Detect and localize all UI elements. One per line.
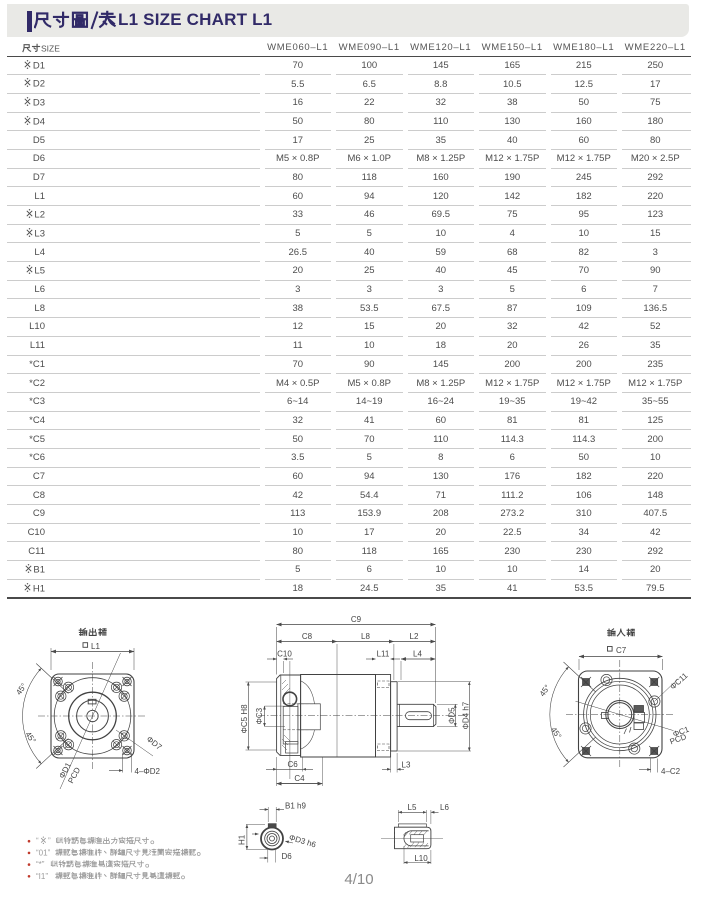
svg-text:C8: C8 <box>302 632 313 641</box>
svg-text:L10: L10 <box>414 854 428 863</box>
svg-text:H1: H1 <box>238 834 247 845</box>
svg-text:L11: L11 <box>377 650 390 659</box>
svg-text:45°: 45° <box>14 682 28 697</box>
svg-text:C7: C7 <box>616 646 627 655</box>
svg-text:L2: L2 <box>410 632 419 641</box>
svg-text:C10: C10 <box>277 650 292 659</box>
svg-text:D6: D6 <box>282 852 293 861</box>
svg-text:L3: L3 <box>402 761 411 770</box>
svg-text:ΦC5 H8: ΦC5 H8 <box>240 704 249 734</box>
svg-text:L1: L1 <box>91 642 100 651</box>
svg-text:L6: L6 <box>440 803 449 812</box>
svg-text:C4: C4 <box>294 774 305 783</box>
svg-text:4–ΦD2: 4–ΦD2 <box>135 767 161 776</box>
svg-text:ΦC11: ΦC11 <box>668 671 690 692</box>
svg-text:ΦD7: ΦD7 <box>145 734 164 752</box>
svg-text:PCD: PCD <box>669 732 688 746</box>
svg-text:C6: C6 <box>287 760 298 769</box>
svg-text:C9: C9 <box>351 615 362 624</box>
svg-text:ΦD5: ΦD5 <box>448 707 457 724</box>
svg-text:ΦC3: ΦC3 <box>255 707 264 724</box>
svg-text:45°: 45° <box>23 730 37 745</box>
svg-text:45°: 45° <box>538 683 552 698</box>
svg-text:ΦD3 h6: ΦD3 h6 <box>288 833 318 850</box>
svg-text:L5: L5 <box>408 803 417 812</box>
svg-text:4–C2: 4–C2 <box>661 767 681 776</box>
svg-text:L4: L4 <box>413 650 422 659</box>
svg-text:ΦD4 h7: ΦD4 h7 <box>461 701 470 729</box>
svg-text:L8: L8 <box>361 632 370 641</box>
svg-text:B1 h9: B1 h9 <box>285 802 306 811</box>
